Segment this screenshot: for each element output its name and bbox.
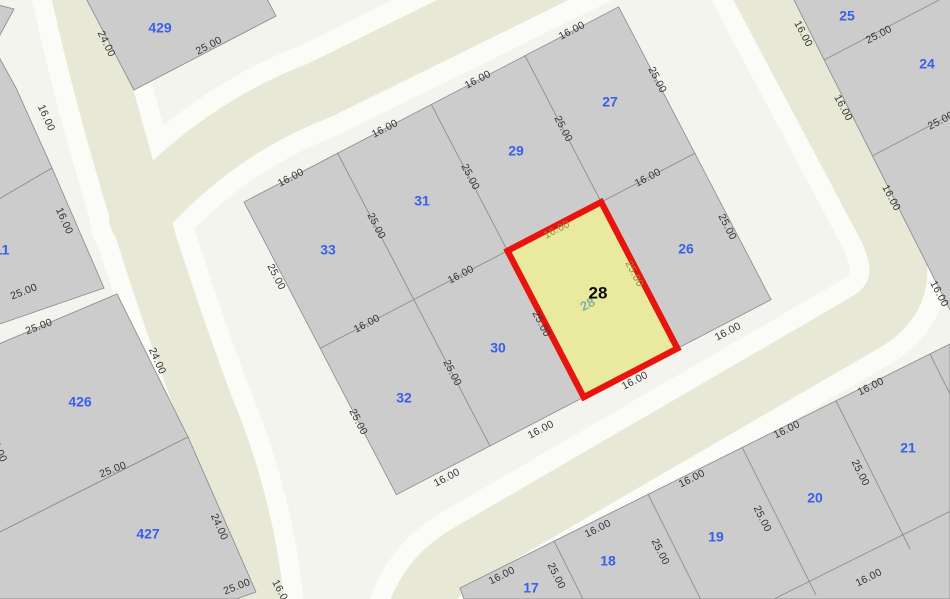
parcel-number-31: 31 xyxy=(414,193,430,209)
parcel-number-29: 29 xyxy=(508,143,524,159)
parcel-map[interactable]: 16.0016.0016.0016.0016.0016.0016.0016.00… xyxy=(0,0,950,599)
parcel-number-33: 33 xyxy=(320,242,336,258)
parcel-number-18: 18 xyxy=(600,553,616,569)
parcel-number-21: 21 xyxy=(900,440,916,456)
parcel-number-17: 17 xyxy=(523,580,539,596)
parcel-number-11: 11 xyxy=(0,242,10,258)
parcel-number-26: 26 xyxy=(678,241,694,257)
parcel-number-24: 24 xyxy=(919,56,935,72)
map-viewport[interactable]: 16.0016.0016.0016.0016.0016.0016.0016.00… xyxy=(0,0,950,599)
parcel-number-19: 19 xyxy=(708,529,724,545)
parcel-number-30: 30 xyxy=(490,340,506,356)
parcel-number-25: 25 xyxy=(839,8,855,24)
selected-parcel-number: 28 xyxy=(589,283,608,302)
parcel-number-427: 427 xyxy=(136,526,160,542)
parcel-number-20: 20 xyxy=(807,490,823,506)
parcel-number-27: 27 xyxy=(602,94,618,110)
parcel-number-429: 429 xyxy=(148,20,172,36)
parcel-number-32: 32 xyxy=(396,390,412,406)
parcel-number-426: 426 xyxy=(68,394,92,410)
